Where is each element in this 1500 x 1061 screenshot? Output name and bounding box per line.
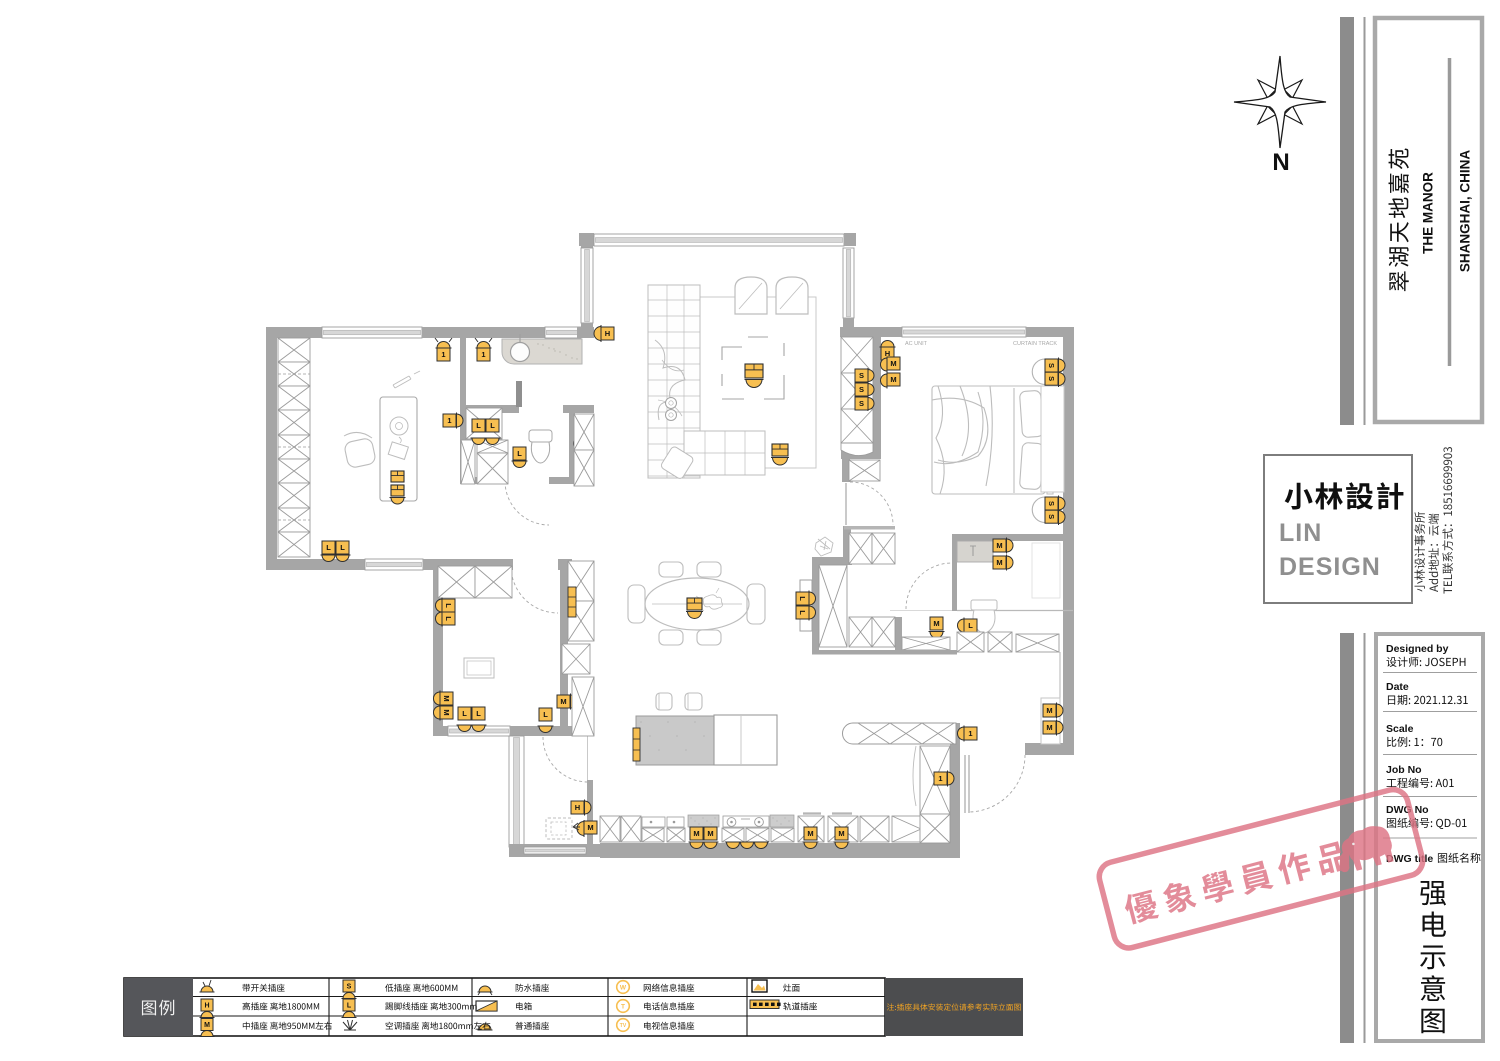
svg-text:TV: TV [620,1023,627,1029]
svg-text:AC UNIT: AC UNIT [905,341,928,347]
svg-text:L: L [444,603,453,608]
svg-text:H: H [575,803,580,812]
svg-text:Job No: Job No [1386,764,1422,776]
svg-text:S: S [859,399,864,408]
svg-text:Scale: Scale [1386,723,1414,735]
svg-text:S: S [1047,501,1056,506]
svg-text:S: S [347,984,352,991]
svg-text:W: W [620,984,627,991]
svg-text:LIN: LIN [1279,519,1322,547]
svg-text:S: S [1047,514,1056,519]
svg-text:M: M [587,823,593,832]
svg-text:Designed by: Designed by [1386,643,1449,655]
svg-text:M: M [693,829,699,838]
svg-text:1: 1 [447,416,451,425]
svg-text:M: M [442,709,451,715]
svg-text:L: L [340,543,345,552]
svg-text:L: L [517,449,522,458]
svg-text:S: S [1047,376,1056,381]
svg-text:H: H [204,1003,209,1010]
svg-text:SHANGHAI, CHINA: SHANGHAI, CHINA [1458,150,1473,273]
svg-text:M: M [933,619,939,628]
svg-text:S: S [1047,363,1056,368]
svg-text:1: 1 [938,774,942,783]
svg-text:L: L [476,709,481,718]
svg-text:M: M [996,541,1002,550]
svg-text:M: M [1046,723,1052,732]
svg-text:M: M [890,359,896,368]
svg-text:M: M [707,829,713,838]
svg-text:N: N [1272,149,1289,176]
svg-text:L: L [444,616,453,621]
svg-text:H: H [605,329,610,338]
svg-text:L: L [798,596,807,601]
svg-text:L: L [326,543,331,552]
svg-text:L: L [347,1003,352,1010]
svg-text:S: S [859,385,864,394]
svg-text:M: M [838,829,844,838]
svg-text:L: L [968,621,973,630]
svg-text:Date: Date [1386,681,1409,693]
svg-text:CURTAIN TRACK: CURTAIN TRACK [1013,341,1057,347]
svg-text:L: L [476,421,481,430]
svg-text:M: M [890,375,896,384]
svg-text:M: M [807,829,813,838]
svg-text:M: M [442,695,451,701]
svg-text:1: 1 [968,729,972,738]
svg-text:1: 1 [441,350,445,359]
svg-text:L: L [543,710,548,719]
svg-text:T: T [621,1003,625,1010]
svg-text:L: L [798,610,807,615]
svg-text:M: M [204,1022,210,1029]
svg-text:L: L [462,709,467,718]
svg-text:1: 1 [481,350,485,359]
svg-text:M: M [1046,706,1052,715]
svg-text:M: M [560,697,566,706]
svg-text:DESIGN: DESIGN [1279,553,1381,581]
svg-text:S: S [859,371,864,380]
svg-text:M: M [996,558,1002,567]
svg-text:THE MANOR: THE MANOR [1421,172,1436,254]
svg-text:L: L [490,421,495,430]
